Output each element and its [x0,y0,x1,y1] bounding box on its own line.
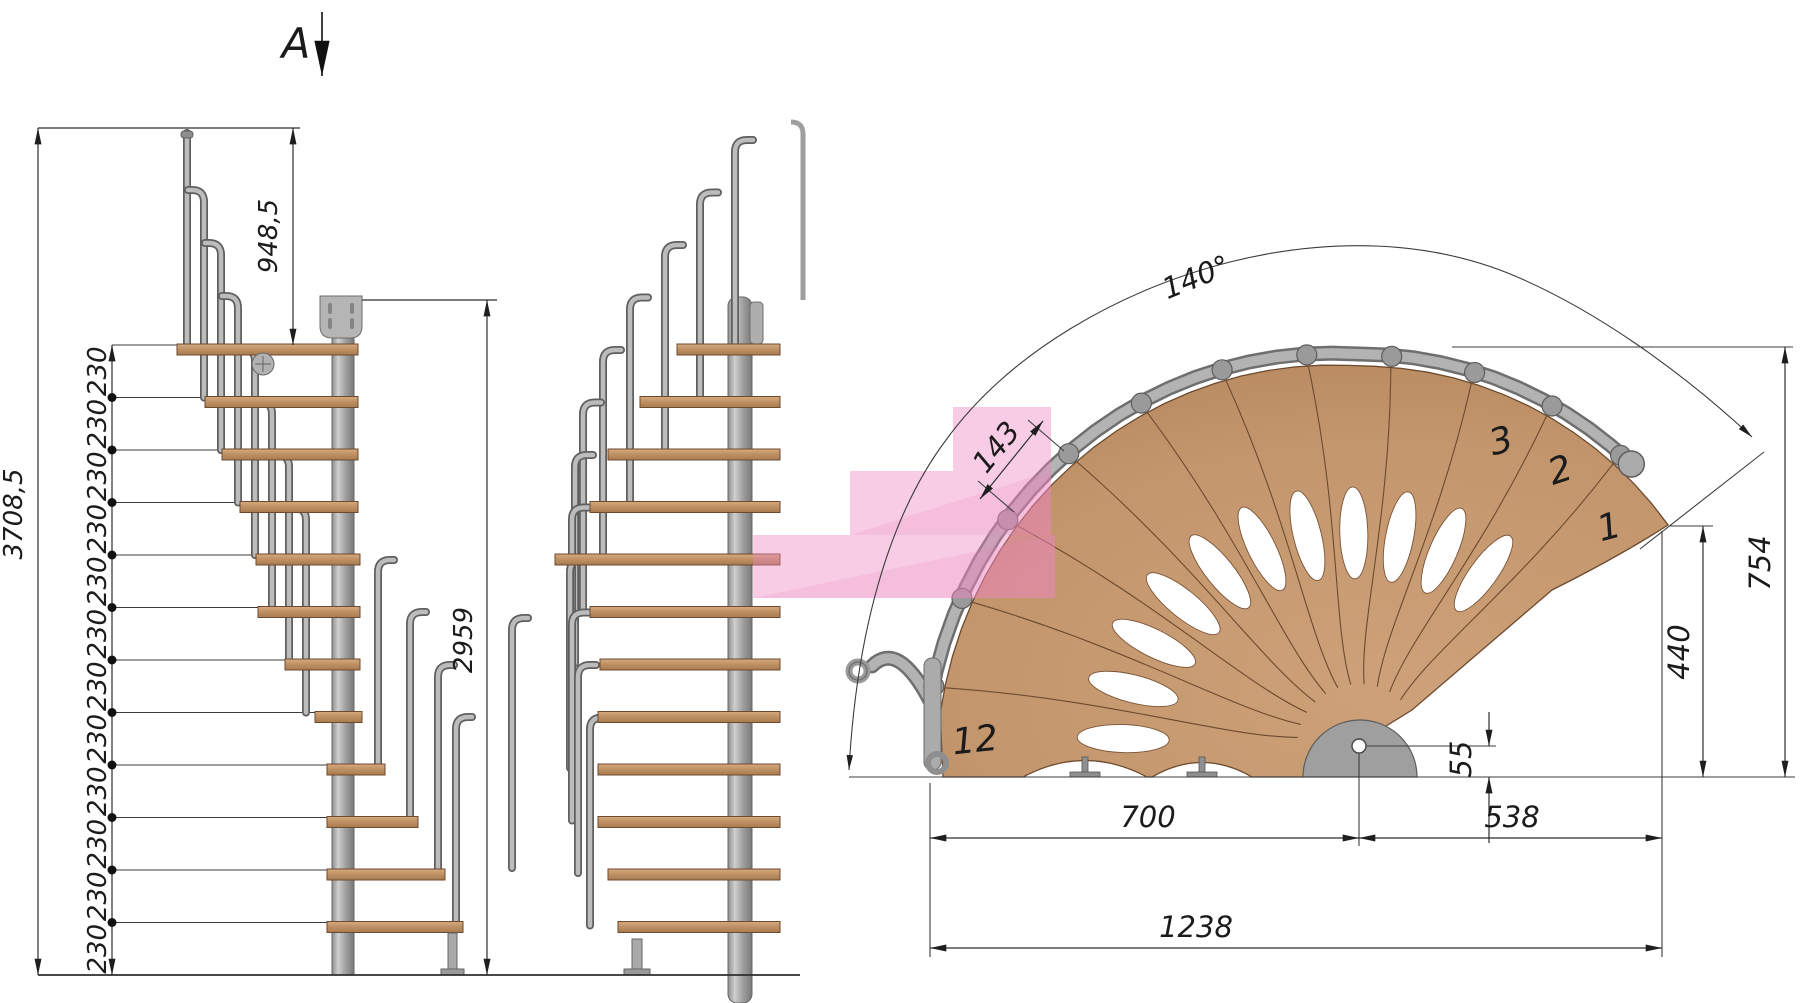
riser-height-dim: 230 [83,819,113,869]
section-marker-label: A [279,19,311,68]
top-segment-dim: 948,5 [254,199,284,273]
tread-side-profile [590,502,780,513]
total-span-dim: 1238 [1159,910,1233,944]
tread-side-profile [315,712,362,723]
riser-height-dim: 230 [83,504,113,554]
riser-height-dim: 230 [83,451,113,501]
tread-side-profile [600,659,780,670]
tread-side-profile [258,607,360,618]
riser-height-dim: 230 [83,714,113,764]
riser-height-dim: 230 [83,661,113,711]
riser-height-dim: 230 [83,346,113,396]
tread-side-profile [327,764,385,775]
pole-axis-mark [1352,739,1366,753]
technical-drawing-canvas: 1 2 3 12 A 3708,5 948,5 2302302302302302… [0,0,1800,1003]
handrail-connector [1542,396,1562,416]
tread-side-profile [327,869,445,880]
tread-side-profile [608,869,780,880]
rotation-angle-dim: 140° [1157,248,1235,306]
tread-side-profile [590,607,780,618]
side-elevation-view [112,131,528,975]
handrail-end-cap [1618,451,1644,477]
tread-side-profile [285,659,360,670]
center-offset-dim: 55 [1444,741,1478,778]
handrail-connector [1465,363,1485,383]
plan-end-baluster [849,658,946,772]
tread-side-profile [555,554,780,565]
top-mount-plate [320,296,362,338]
span-left-dim: 700 [1120,800,1175,834]
span-right-dim: 538 [1484,800,1539,834]
tread-side-profile [640,397,780,408]
handrail-connector [1059,444,1079,464]
tread-side-profile [598,712,780,723]
pole-top-bracket [750,302,763,344]
tread-width-dim: 440 [1662,624,1696,679]
handrail-connector [1297,345,1317,365]
tread-side-profile [677,344,780,355]
step-number-12: 12 [950,718,1000,764]
rear-rail-post [791,122,803,300]
tread-side-profile [598,817,780,828]
tread-side-profile [256,554,360,565]
outer-radius-dim: 754 [1743,535,1777,590]
tread-side-profile [177,344,358,355]
riser-height-dim: 230 [83,609,113,659]
handrail-connector [1212,360,1232,380]
tread-side-profile [608,449,780,460]
riser-height-dim: 230 [83,399,113,449]
tread-side-profile [618,922,780,933]
riser-height-dim: 230 [83,924,113,974]
riser-height-dim: 230 [83,766,113,816]
riser-height-dim: 230 [83,556,113,606]
tread-side-profile [240,502,358,513]
rail-height-dim: 2959 [449,607,479,673]
tread-side-profile [327,922,463,933]
tread-side-profile [222,449,358,460]
tread-side-profile [327,817,418,828]
handrail-connector [1131,393,1151,413]
tread-side-profile [205,397,358,408]
riser-height-dim: 230 [83,871,113,921]
handrail-connector [1382,346,1402,366]
overall-height-dim: 3708,5 [0,469,29,560]
spiral-staircase-drawing: 1 2 3 12 A 3708,5 948,5 2302302302302302… [0,0,1800,1003]
tread-side-profile [598,764,780,775]
